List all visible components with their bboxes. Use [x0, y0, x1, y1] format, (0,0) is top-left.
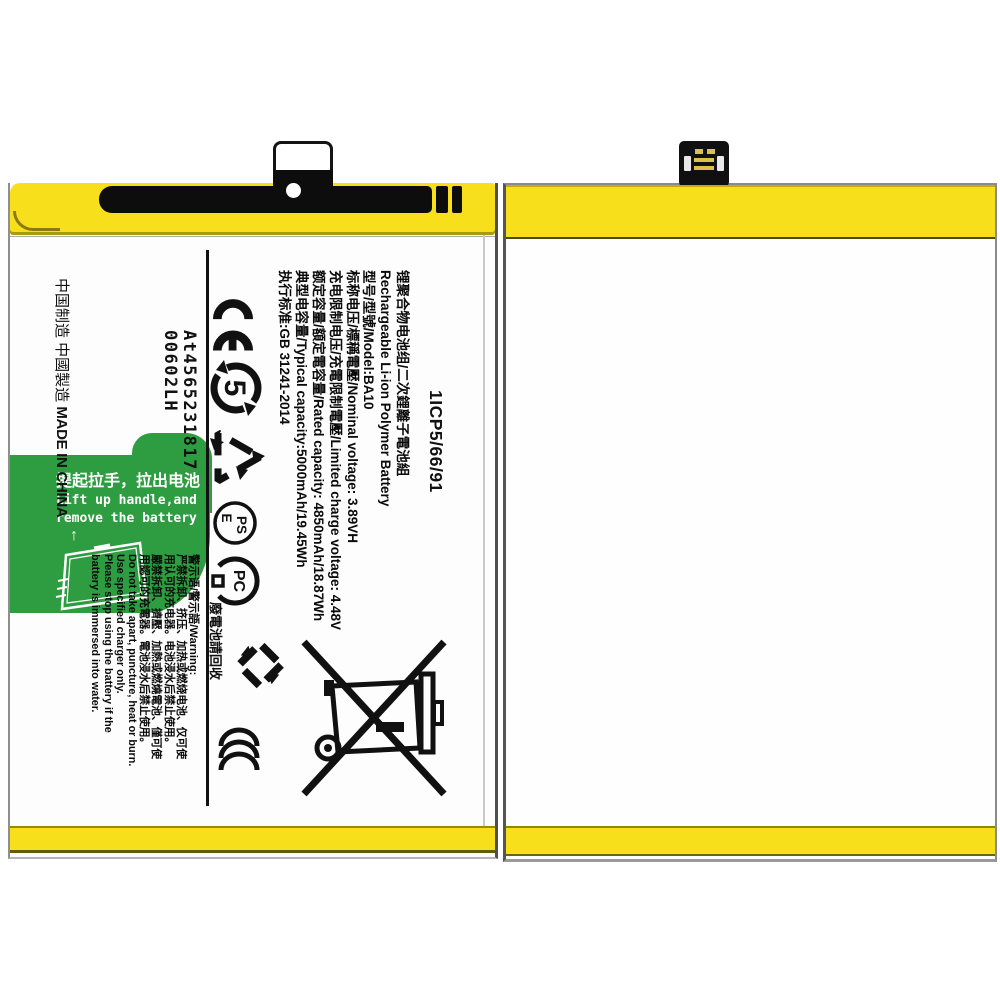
label-right-edge — [483, 235, 485, 835]
top-yellow-band-back — [506, 185, 995, 239]
connector-hole — [286, 183, 301, 198]
strip-segment — [436, 186, 448, 213]
spec-line: 锂聚合物电池组/二次鋰離子電池組 — [393, 270, 410, 630]
battery-back — [503, 183, 997, 862]
warning-line: Please stop using the battery if the — [101, 554, 113, 766]
band-fold-line — [13, 211, 60, 231]
spec-line: Rechargeable Li-ion Polymer Battery — [376, 270, 393, 630]
chip-pad — [694, 158, 714, 162]
cell-part-number: 1ICP5/66/91 — [425, 390, 446, 493]
warning-line: 用认可的充电器。电池浸水后禁止使用。 — [162, 554, 174, 766]
battery-product-photo: 提起拉手，拉出电池 Lift up handle,and remove the … — [0, 0, 1000, 1000]
spec-line: 额定容量/額定電容量/Rated capacity: 4850mAh/18.87… — [309, 270, 326, 630]
bottom-yellow-stripe — [10, 826, 495, 853]
warning-block: 警示语/警示語/Warning: 严禁拆卸、挤压、加热或燃烧电池、仅可使 用认可… — [89, 554, 199, 766]
made-in-en: MADE IN CHINA — [53, 406, 70, 517]
ccc-mark-icon — [216, 718, 262, 776]
warning-line: battery is immersed into water. — [89, 554, 101, 766]
label-top-edge — [10, 236, 495, 237]
spec-block: 锂聚合物电池组/二次鋰離子電池組 Rechargeable Li-ion Pol… — [276, 270, 410, 630]
warning-line: Use specified charger only. — [114, 554, 126, 766]
chip-pad — [707, 149, 715, 154]
chip-pad — [684, 156, 691, 171]
divider-rule — [206, 250, 209, 806]
chip-pad — [695, 149, 703, 154]
serial-line1: At4565231817 — [179, 330, 198, 471]
efup-recycle-icon: 5 — [208, 360, 264, 416]
serial-line2: 00602LH — [160, 330, 179, 471]
connector-chip — [679, 141, 729, 187]
ce-mark-icon — [210, 286, 256, 354]
connector-foot — [273, 170, 333, 204]
warning-line: 警示语/警示語/Warning: — [187, 554, 199, 766]
spec-line: 型号/型號/Model:BA10 — [360, 270, 377, 630]
serial-number: At4565231817 00602LH — [160, 330, 198, 471]
warning-line: Do not take apart, puncture, heat or bur… — [126, 554, 138, 766]
battery-front: 提起拉手，拉出电池 Lift up handle,and remove the … — [8, 183, 498, 859]
strip-segment — [452, 186, 462, 213]
spec-line: 典型电容量/Typical capacity:5000mAh/19.45Wh — [292, 270, 309, 630]
pse-top-label: PS — [234, 516, 249, 534]
pc-label: PC — [230, 570, 247, 593]
warning-line: 用認可的充電器。電池浸水后禁止使用。 — [138, 554, 150, 766]
warning-line: 嚴禁拆卸、擠壓、加熱或燃燒電池、僅可使 — [150, 554, 162, 766]
spec-line: 标称电压/標稱電壓/Nominal voltage: 3.89VH — [343, 270, 360, 630]
bottom-yellow-stripe-back — [506, 826, 995, 856]
recycle-caption: 廢電池請回收 — [207, 602, 226, 680]
crossed-bin-icon — [298, 636, 450, 800]
psc-mark-icon: PC — [210, 554, 266, 608]
pse-bottom-label: E — [219, 513, 234, 522]
top-black-strip — [99, 186, 432, 213]
warning-line: 严禁拆卸、挤压、加热或燃烧电池、仅可使 — [175, 554, 187, 766]
spec-line: 执行标准:GB 31241-2014 — [276, 270, 293, 630]
made-in-cn: 中国制造 中國製造 — [53, 278, 70, 402]
mobius-recycle-icon — [208, 426, 266, 488]
pse-mark-icon: PS E — [212, 500, 258, 546]
chip-pad — [694, 166, 714, 170]
printed-label: 1ICP5/66/91 锂聚合物电池组/二次鋰離子電池組 Rechargeabl… — [16, 240, 456, 835]
spec-line: 充电限制电压/充電限制電壓/Limited charge voltage: 4.… — [326, 270, 343, 630]
made-in-line: 中国制造 中國製造 MADE IN CHINA — [52, 278, 73, 517]
efup-number: 5 — [218, 380, 251, 397]
chip-pad — [717, 156, 724, 171]
taiwan-recycle-icon — [234, 640, 286, 690]
